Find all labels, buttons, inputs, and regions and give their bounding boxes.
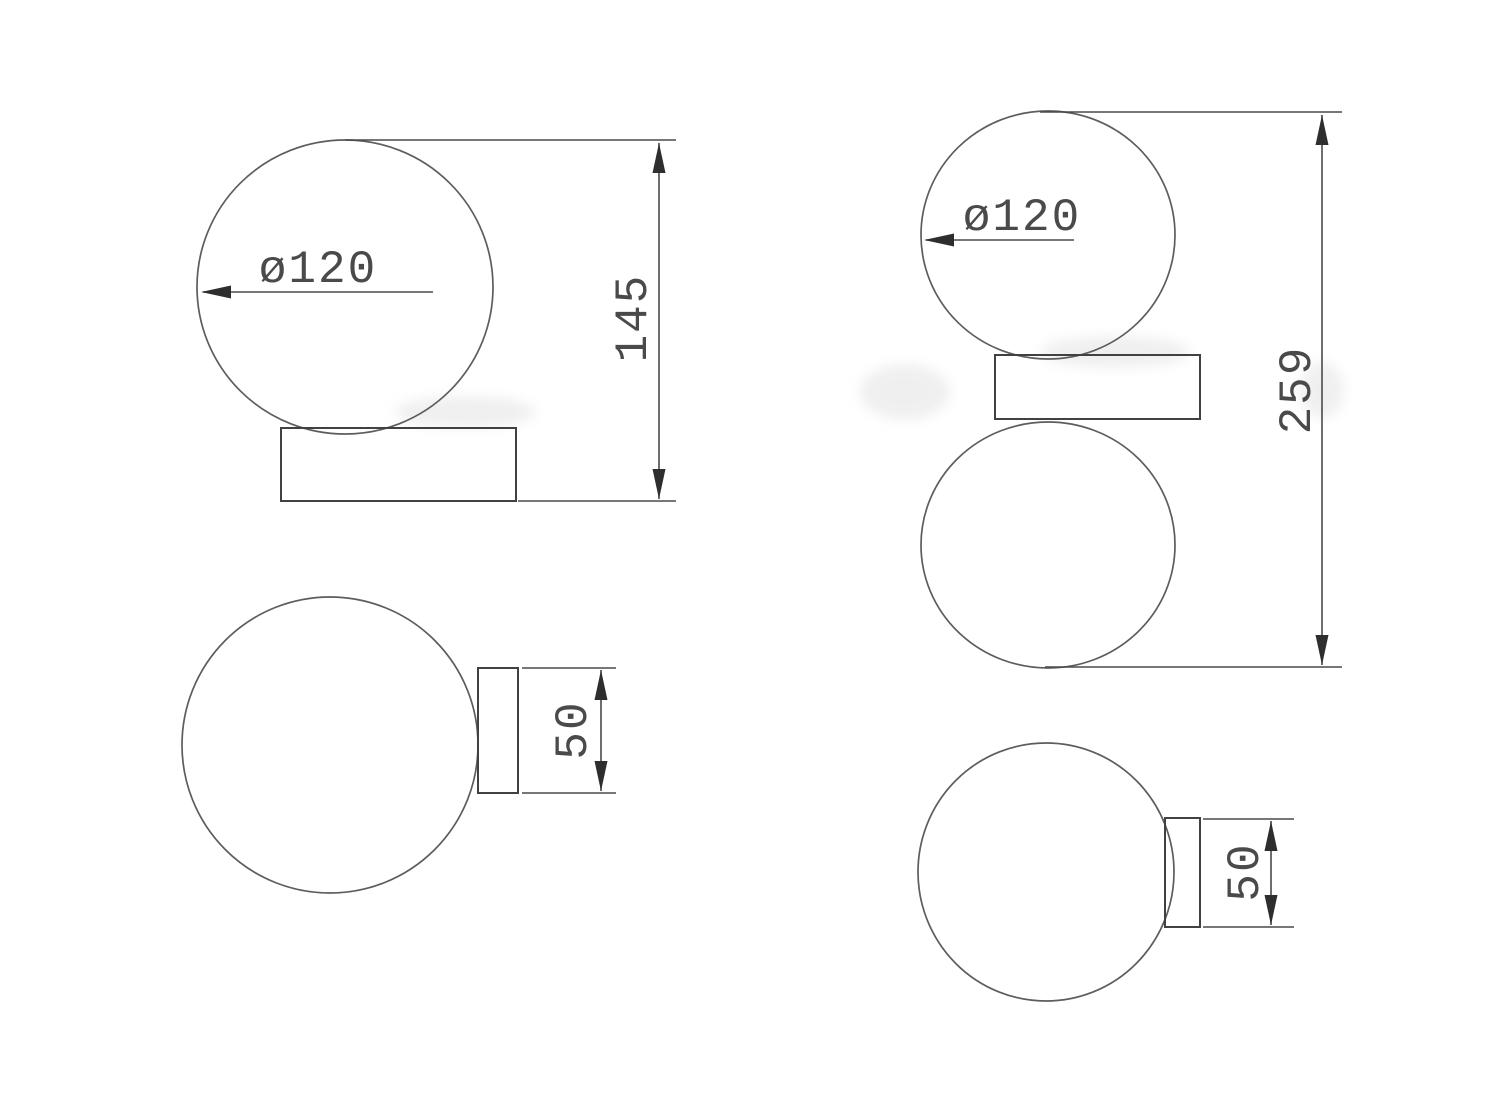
wall-box-outline xyxy=(1165,818,1200,927)
arrowhead-up-icon xyxy=(595,670,608,700)
globe-outline xyxy=(182,597,478,893)
height-label: 145 xyxy=(608,274,660,363)
smudge-blob xyxy=(395,396,535,428)
dimension-drawing-svg: ø120 145 50 ø120 259 xyxy=(0,0,1500,1094)
technical-drawing-canvas: ø120 145 50 ø120 259 xyxy=(0,0,1500,1094)
wall-box-outline xyxy=(478,668,518,793)
diameter-label: ø120 xyxy=(259,244,377,296)
arrowhead-down-icon xyxy=(1316,635,1329,665)
arrowhead-left-icon xyxy=(201,286,231,299)
height-label: 259 xyxy=(1272,346,1324,435)
figure-double-globe-side-view: ø120 259 xyxy=(921,111,1342,668)
depth-label: 50 xyxy=(1220,842,1272,901)
arrowhead-up-icon xyxy=(1316,115,1329,145)
smudge-blob xyxy=(860,364,950,420)
diameter-label: ø120 xyxy=(963,192,1081,244)
arrowhead-up-icon xyxy=(653,143,666,173)
figure-double-globe-top-view: 50 xyxy=(918,743,1294,1001)
globe-outline xyxy=(918,743,1174,1001)
arrowhead-left-icon xyxy=(924,234,954,247)
figure-single-globe-side-view: ø120 145 xyxy=(197,140,676,501)
arrowhead-down-icon xyxy=(653,469,666,499)
arrowhead-down-icon xyxy=(595,761,608,791)
scan-artifacts xyxy=(395,336,1344,428)
lower-globe-outline xyxy=(921,422,1175,668)
base-outline xyxy=(281,428,516,501)
figure-single-globe-top-view: 50 xyxy=(182,597,616,893)
depth-label: 50 xyxy=(548,700,600,759)
